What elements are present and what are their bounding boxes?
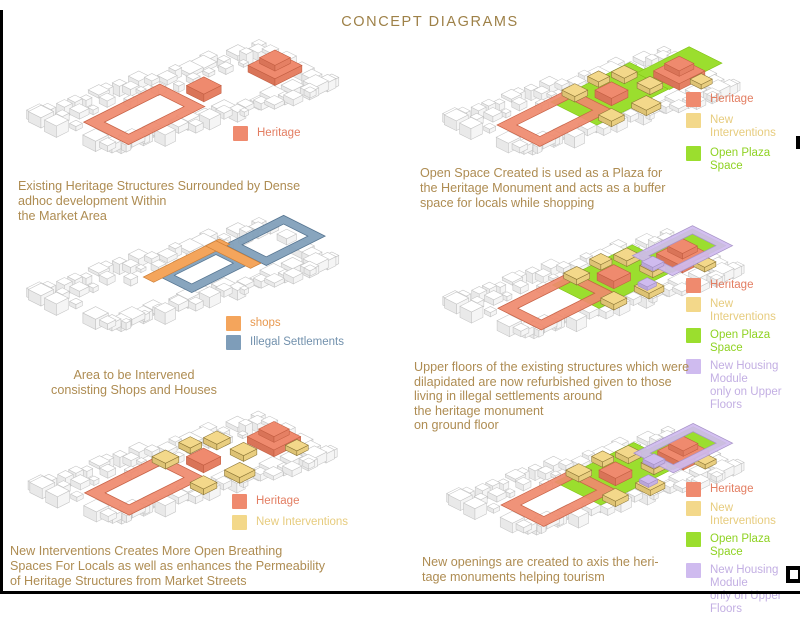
page-left-border — [0, 10, 3, 594]
caption-line: Open Space Created is used as a Plaza fo… — [420, 166, 760, 181]
legend-swatch — [686, 278, 701, 293]
legend-item: Heritage — [233, 126, 300, 141]
legend-label: Open Plaza Space — [710, 328, 800, 355]
legend-swatch — [233, 126, 248, 141]
caption-line: dilapidated are now refurbished given to… — [414, 375, 764, 390]
caption-line: New Interventions Creates More Open Brea… — [10, 544, 360, 559]
diagram-existing-heritage — [2, 18, 348, 178]
legend-label: Heritage — [710, 482, 753, 496]
caption-line: Area to be Intervened — [8, 368, 260, 383]
legend-item: Heritage — [686, 92, 800, 107]
legend-swatch — [686, 328, 701, 343]
legend: Heritage — [233, 126, 300, 147]
legend-item: Heritage — [232, 494, 348, 509]
legend-swatch — [232, 515, 247, 530]
caption-line: Upper floors of the existing structures … — [414, 360, 764, 375]
caption-line: living in illegal settlements around — [414, 389, 764, 404]
caption-line: the Heritage Monument and acts as a buff… — [420, 181, 760, 196]
caption: New Interventions Creates More Open Brea… — [10, 544, 360, 589]
legend-item: Open Plaza Space — [686, 328, 800, 355]
legend-label: New Interventions — [710, 113, 800, 140]
legend-item: New Interventions — [686, 297, 800, 324]
legend: Heritage New Interventions — [232, 494, 348, 536]
legend-item: Heritage — [686, 278, 800, 293]
legend-label: Open Plaza Space — [710, 532, 800, 559]
legend-item: New Interventions — [232, 515, 348, 530]
caption-line: tage monuments helping tourism — [422, 570, 722, 585]
legend-label: Heritage — [257, 126, 300, 140]
legend-swatch — [686, 113, 701, 128]
legend-label: Heritage — [710, 92, 753, 106]
legend-swatch — [686, 297, 701, 312]
legend-swatch — [686, 501, 701, 516]
legend-label: New Interventions — [710, 297, 800, 324]
caption-line: of Heritage Structures from Market Stree… — [10, 574, 360, 589]
legend-swatch — [226, 335, 241, 350]
legend-item: New Interventions — [686, 113, 800, 140]
page-corner-icon[interactable] — [786, 566, 800, 583]
legend-label: New Interventions — [710, 501, 800, 528]
legend: Heritage New Interventions Open Plaza Sp… — [686, 482, 800, 620]
caption-line: Existing Heritage Structures Surrounded … — [18, 179, 358, 194]
legend-swatch — [686, 146, 701, 161]
page: { "title": "CONCEPT DIAGRAMS", "colors":… — [0, 0, 800, 594]
legend: shops Illegal Settlements — [226, 316, 344, 354]
legend-swatch — [232, 494, 247, 509]
right-edge-mark — [796, 136, 800, 149]
legend-swatch — [686, 482, 701, 497]
legend-swatch — [686, 532, 701, 547]
legend-label: Illegal Settlements — [250, 335, 344, 349]
legend-label: Heritage — [256, 494, 299, 508]
caption-line: New openings are created to axis the her… — [422, 555, 722, 570]
legend-swatch — [686, 92, 701, 107]
legend-item: shops — [226, 316, 344, 331]
caption: New openings are created to axis the her… — [422, 555, 722, 585]
legend-item: Heritage — [686, 482, 800, 497]
legend-label: shops — [250, 316, 281, 330]
legend-item: New Interventions — [686, 501, 800, 528]
legend-label: New Interventions — [256, 515, 348, 529]
legend-swatch — [226, 316, 241, 331]
caption: Open Space Created is used as a Plaza fo… — [420, 166, 760, 211]
caption-line: Spaces For Locals as well as enhances th… — [10, 559, 360, 574]
legend-item: Illegal Settlements — [226, 335, 344, 350]
legend-label: Heritage — [710, 278, 753, 292]
